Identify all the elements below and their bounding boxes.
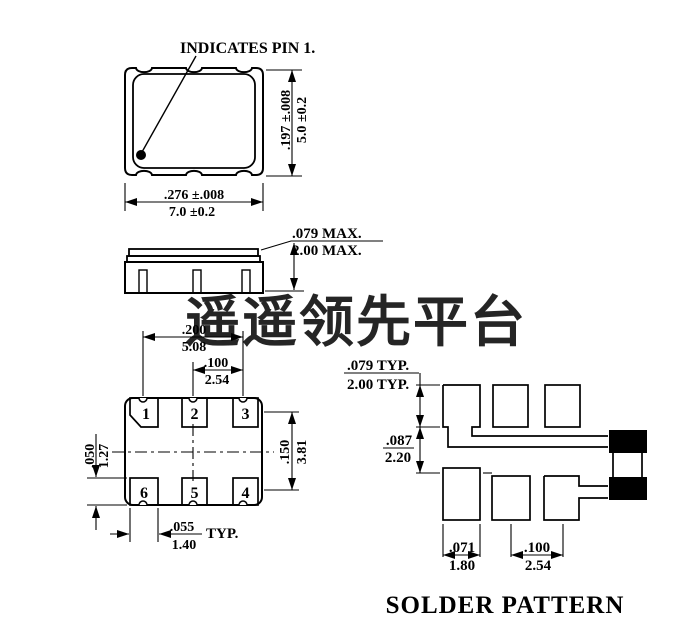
pin-number-3: 3: [242, 406, 250, 423]
dim-top-width-inch: .276 ±.008: [164, 188, 224, 203]
dim-sp-pad-width-inch: .071: [449, 540, 475, 556]
dim-pad-width-inch: .055: [170, 520, 195, 535]
dim-pad-width-typ: TYP.: [206, 526, 239, 542]
dim-sp-pad-pitch-inch: .100: [524, 540, 550, 556]
dim-sp-pad-pitch-mm: 2.54: [525, 558, 552, 574]
dim-pad-span-mm: 5.08: [182, 340, 207, 355]
solder-via-pad-bottom: [609, 477, 647, 500]
dim-sp-pad-height-inch: .079 TYP.: [347, 358, 409, 374]
dim-row-pitch-inch: .150: [278, 440, 293, 465]
dim-pad-width-mm: 1.40: [172, 538, 197, 553]
dim-top-width-mm: 7.0 ±0.2: [169, 205, 215, 220]
dim-pad-span-inch: .200: [182, 323, 207, 338]
dim-top-height-mm: 5.0 ±0.2: [295, 97, 310, 143]
solder-via-pad-top: [609, 430, 647, 453]
dim-sp-pad-width-mm: 1.80: [449, 558, 475, 574]
dim-side-height-inch: .079 MAX.: [292, 226, 362, 242]
dim-side-height-mm: 2.00 MAX.: [292, 243, 362, 259]
dim-top-height-inch: .197 ±.008: [279, 90, 294, 150]
edge-notch: [139, 398, 147, 402]
pin1-callout-label: INDICATES PIN 1.: [180, 40, 315, 57]
solder-pattern-title: SOLDER PATTERN: [386, 592, 625, 619]
pin-number-4: 4: [242, 485, 250, 502]
dim-sp-row-gap-inch: .087: [386, 433, 413, 449]
dim-pad-pitch-mm: 2.54: [205, 373, 230, 388]
watermark-text: 遥遥领先平台: [185, 290, 527, 354]
dim-sp-row-gap-mm: 2.20: [385, 450, 411, 466]
dim-pad-height-inch: .050: [83, 444, 98, 469]
dim-sp-pad-height-mm: 2.00 TYP.: [347, 377, 409, 393]
pin-number-2: 2: [191, 406, 199, 423]
pin-number-1: 1: [142, 406, 150, 423]
edge-notch: [239, 398, 247, 402]
edge-notch: [189, 398, 197, 402]
pin-number-5: 5: [191, 485, 199, 502]
pin1-dot: [136, 150, 146, 160]
dim-pad-height-mm: 1.27: [97, 444, 112, 469]
dim-pad-pitch-inch: .100: [204, 356, 229, 371]
datasheet-drawing: 遥遥领先平台 INDICATES PIN 1. .197 ±.008 5.0 ±…: [0, 0, 684, 637]
pin-number-6: 6: [140, 485, 148, 502]
dim-row-pitch-mm: 3.81: [295, 440, 310, 465]
